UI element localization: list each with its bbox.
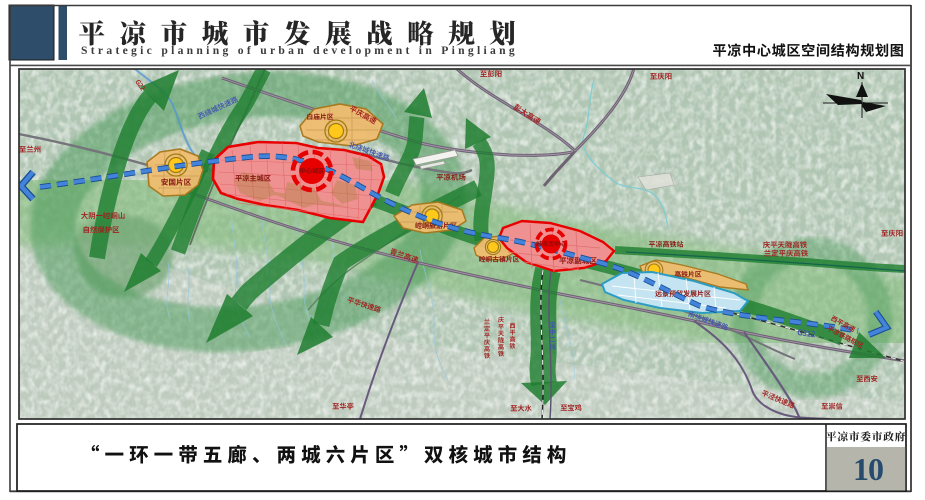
svg-text:10: 10 bbox=[853, 451, 883, 487]
svg-text:N: N bbox=[857, 71, 864, 82]
svg-text:Strategic planning of urban de: Strategic planning of urban development … bbox=[81, 44, 518, 57]
